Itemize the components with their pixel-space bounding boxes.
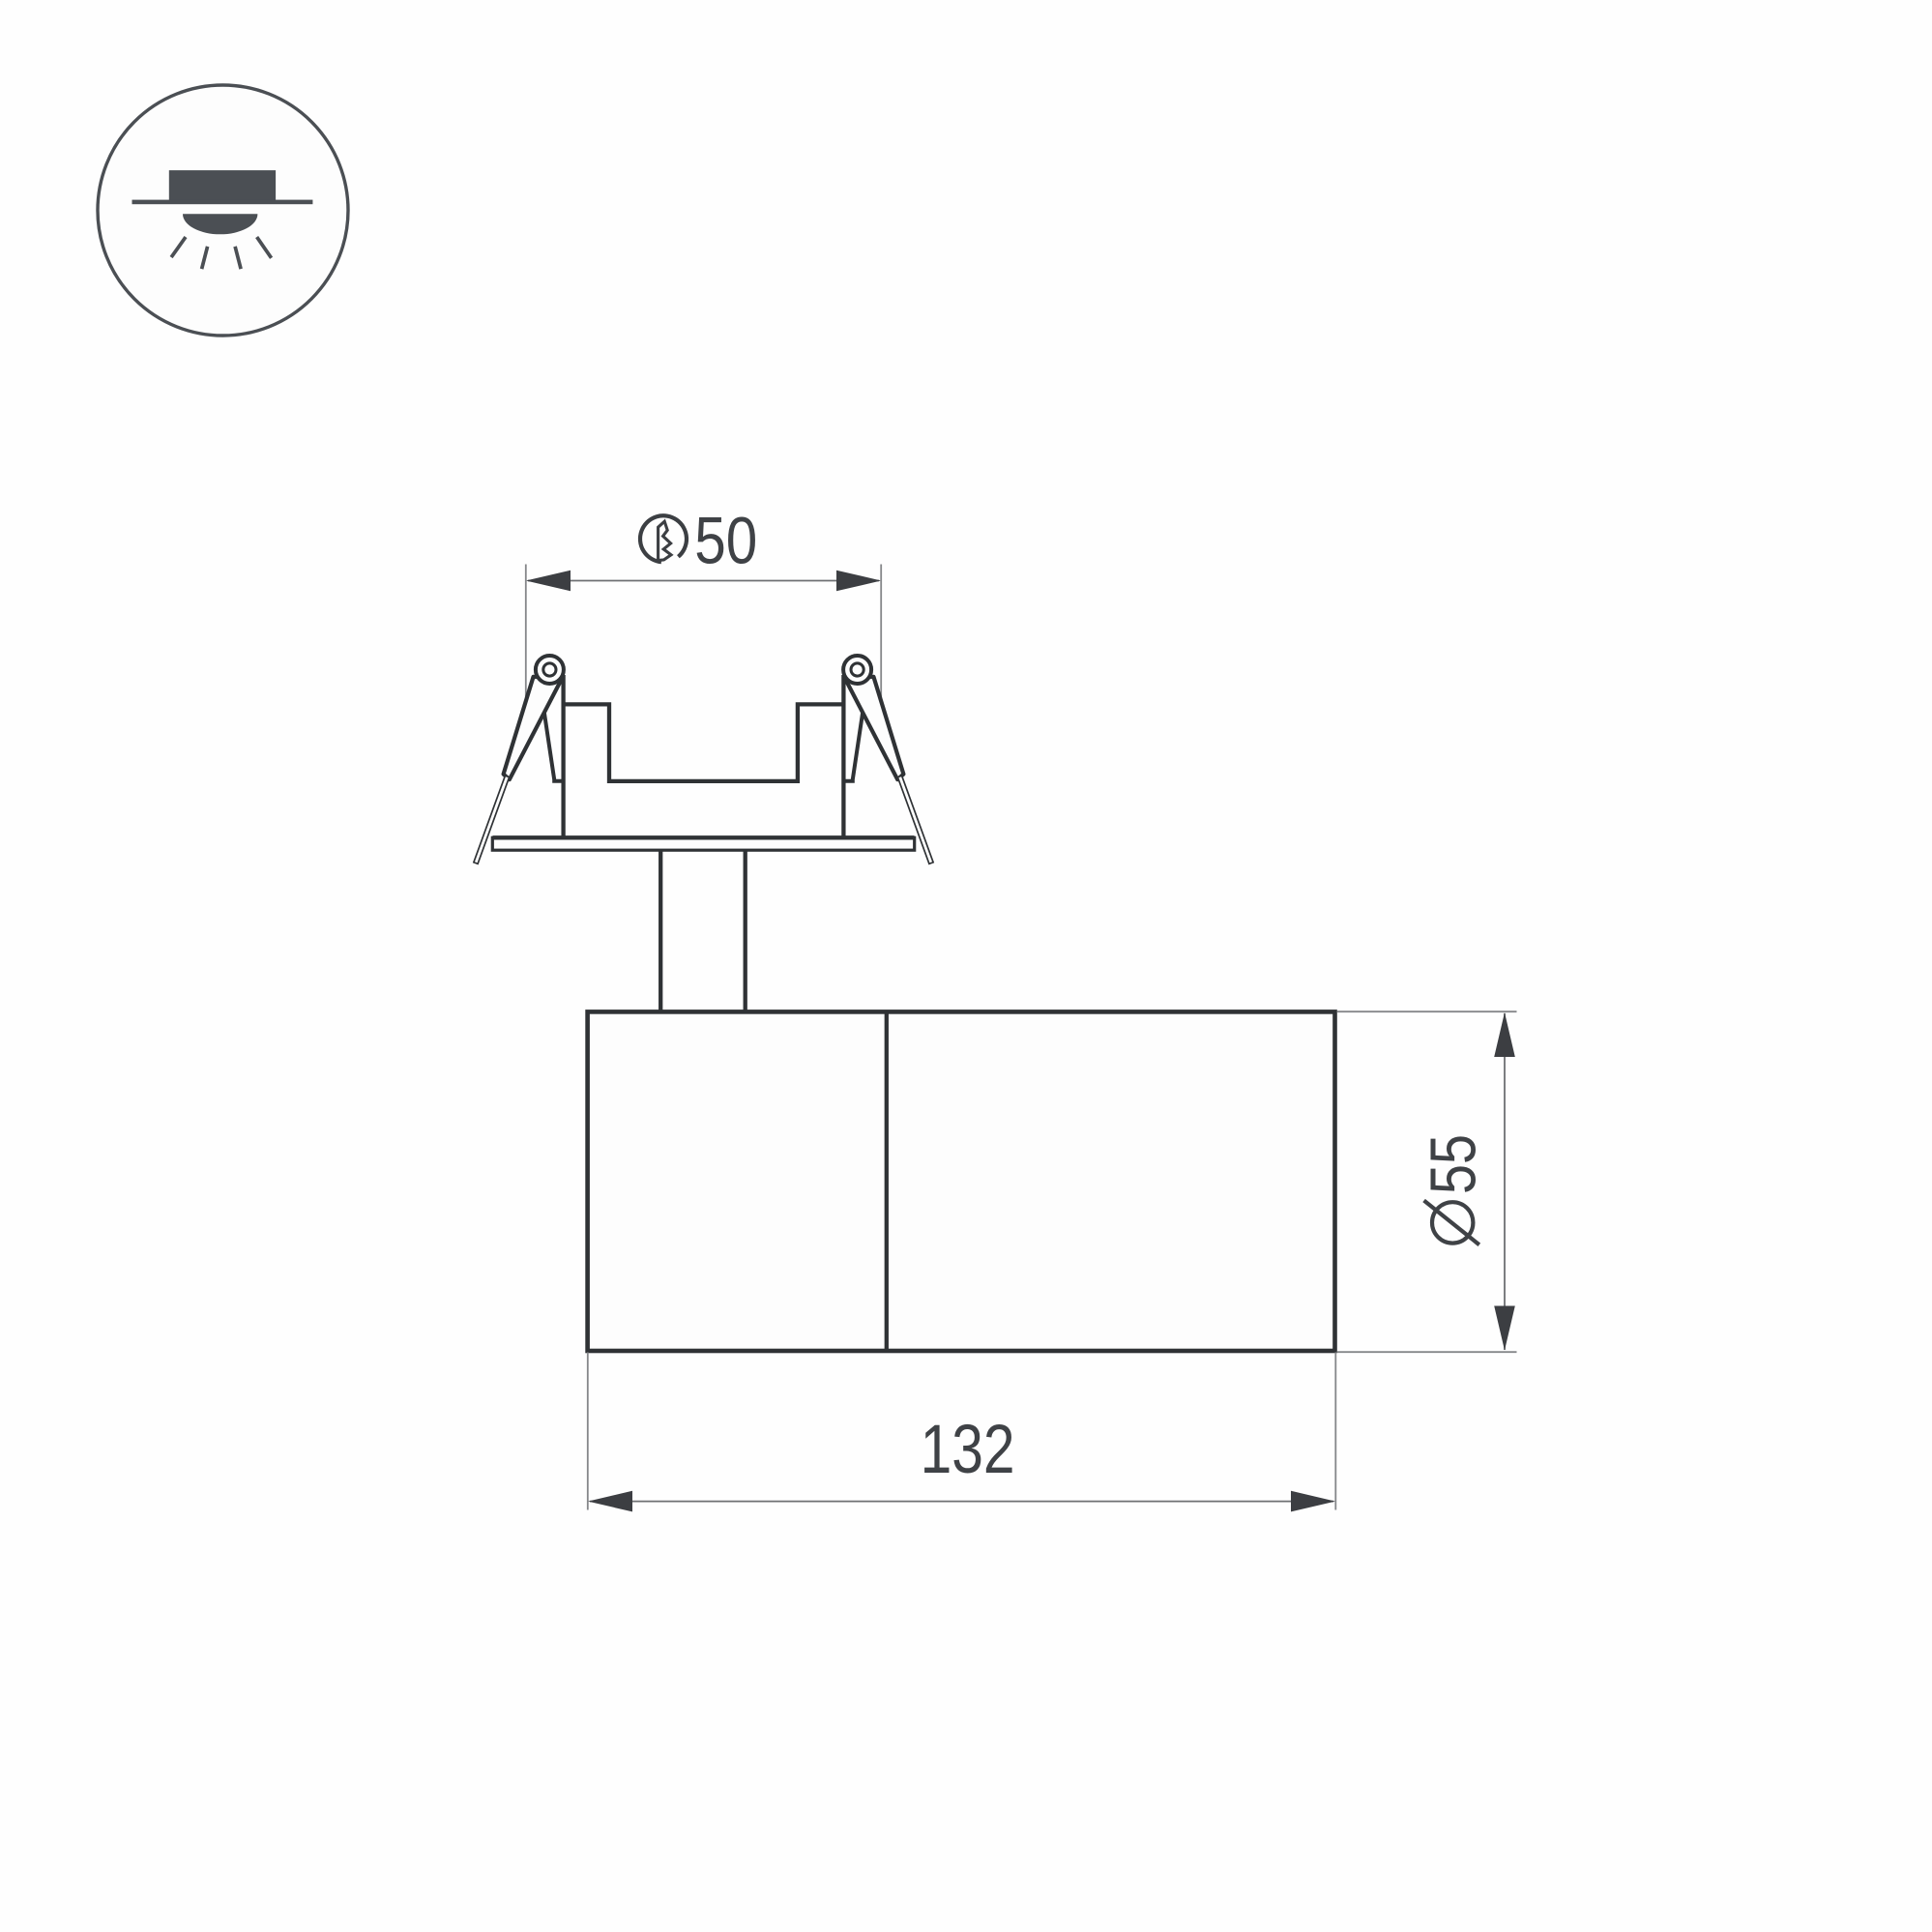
svg-text:55: 55 [1418,1134,1490,1194]
svg-text:132: 132 [921,1412,1015,1488]
svg-text:50: 50 [694,504,757,578]
